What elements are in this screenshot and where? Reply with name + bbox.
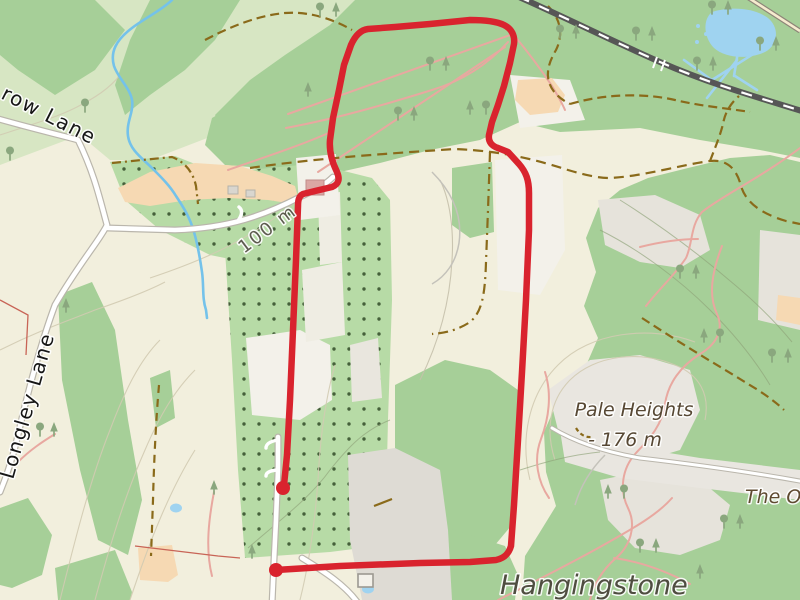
map-canvas[interactable]: row Lane Longley Lane 100 m Pale Heights… [0,0,800,600]
building [358,574,373,587]
peak-label-name: Pale Heights [575,399,694,421]
peak-label-elevation: - 176 m [588,429,662,451]
building [246,190,255,197]
place-label-hangingstone: Hangingstone [500,570,688,600]
pond-small-left [170,504,182,513]
building [228,186,238,194]
route-endpoint-marker[interactable] [276,481,290,495]
route-endpoint-marker[interactable] [269,563,283,577]
place-label-the-o: The O [745,486,800,508]
